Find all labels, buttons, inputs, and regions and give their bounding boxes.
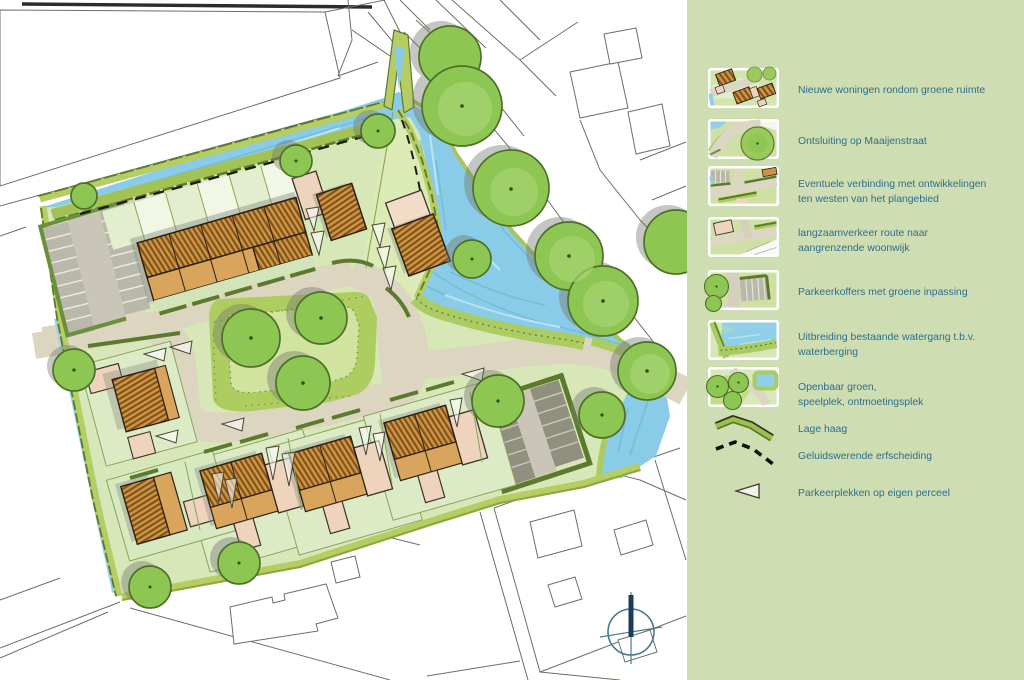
- svg-text:langzaamverkeer route naar: langzaamverkeer route naar: [798, 228, 928, 239]
- svg-text:speelplek, ontmoetingsplek: speelplek, ontmoetingsplek: [798, 397, 924, 408]
- svg-text:Geluidswerende erfscheiding: Geluidswerende erfscheiding: [798, 451, 932, 462]
- svg-text:Parkeerkoffers met groene inpa: Parkeerkoffers met groene inpassing: [798, 287, 968, 298]
- svg-text:Ontsluiting op Maaijenstraat: Ontsluiting op Maaijenstraat: [798, 136, 927, 147]
- svg-text:Parkeerplekken op eigen percee: Parkeerplekken op eigen perceel: [798, 488, 950, 499]
- svg-text:Nieuwe woningen rondom groene: Nieuwe woningen rondom groene ruimte: [798, 85, 985, 96]
- svg-text:Lage haag: Lage haag: [798, 424, 847, 435]
- svg-text:aangrenzende woonwijk: aangrenzende woonwijk: [798, 243, 910, 254]
- svg-text:Eventuele verbinding met ontwi: Eventuele verbinding met ontwikkelingen: [798, 179, 987, 190]
- svg-text:Openbaar groen,: Openbaar groen,: [798, 382, 877, 393]
- svg-text:Uitbreiding bestaande watergan: Uitbreiding bestaande watergang t.b.v.: [798, 332, 975, 343]
- svg-text:ten westen van het plangebied: ten westen van het plangebied: [798, 194, 939, 205]
- svg-text:waterberging: waterberging: [797, 347, 858, 358]
